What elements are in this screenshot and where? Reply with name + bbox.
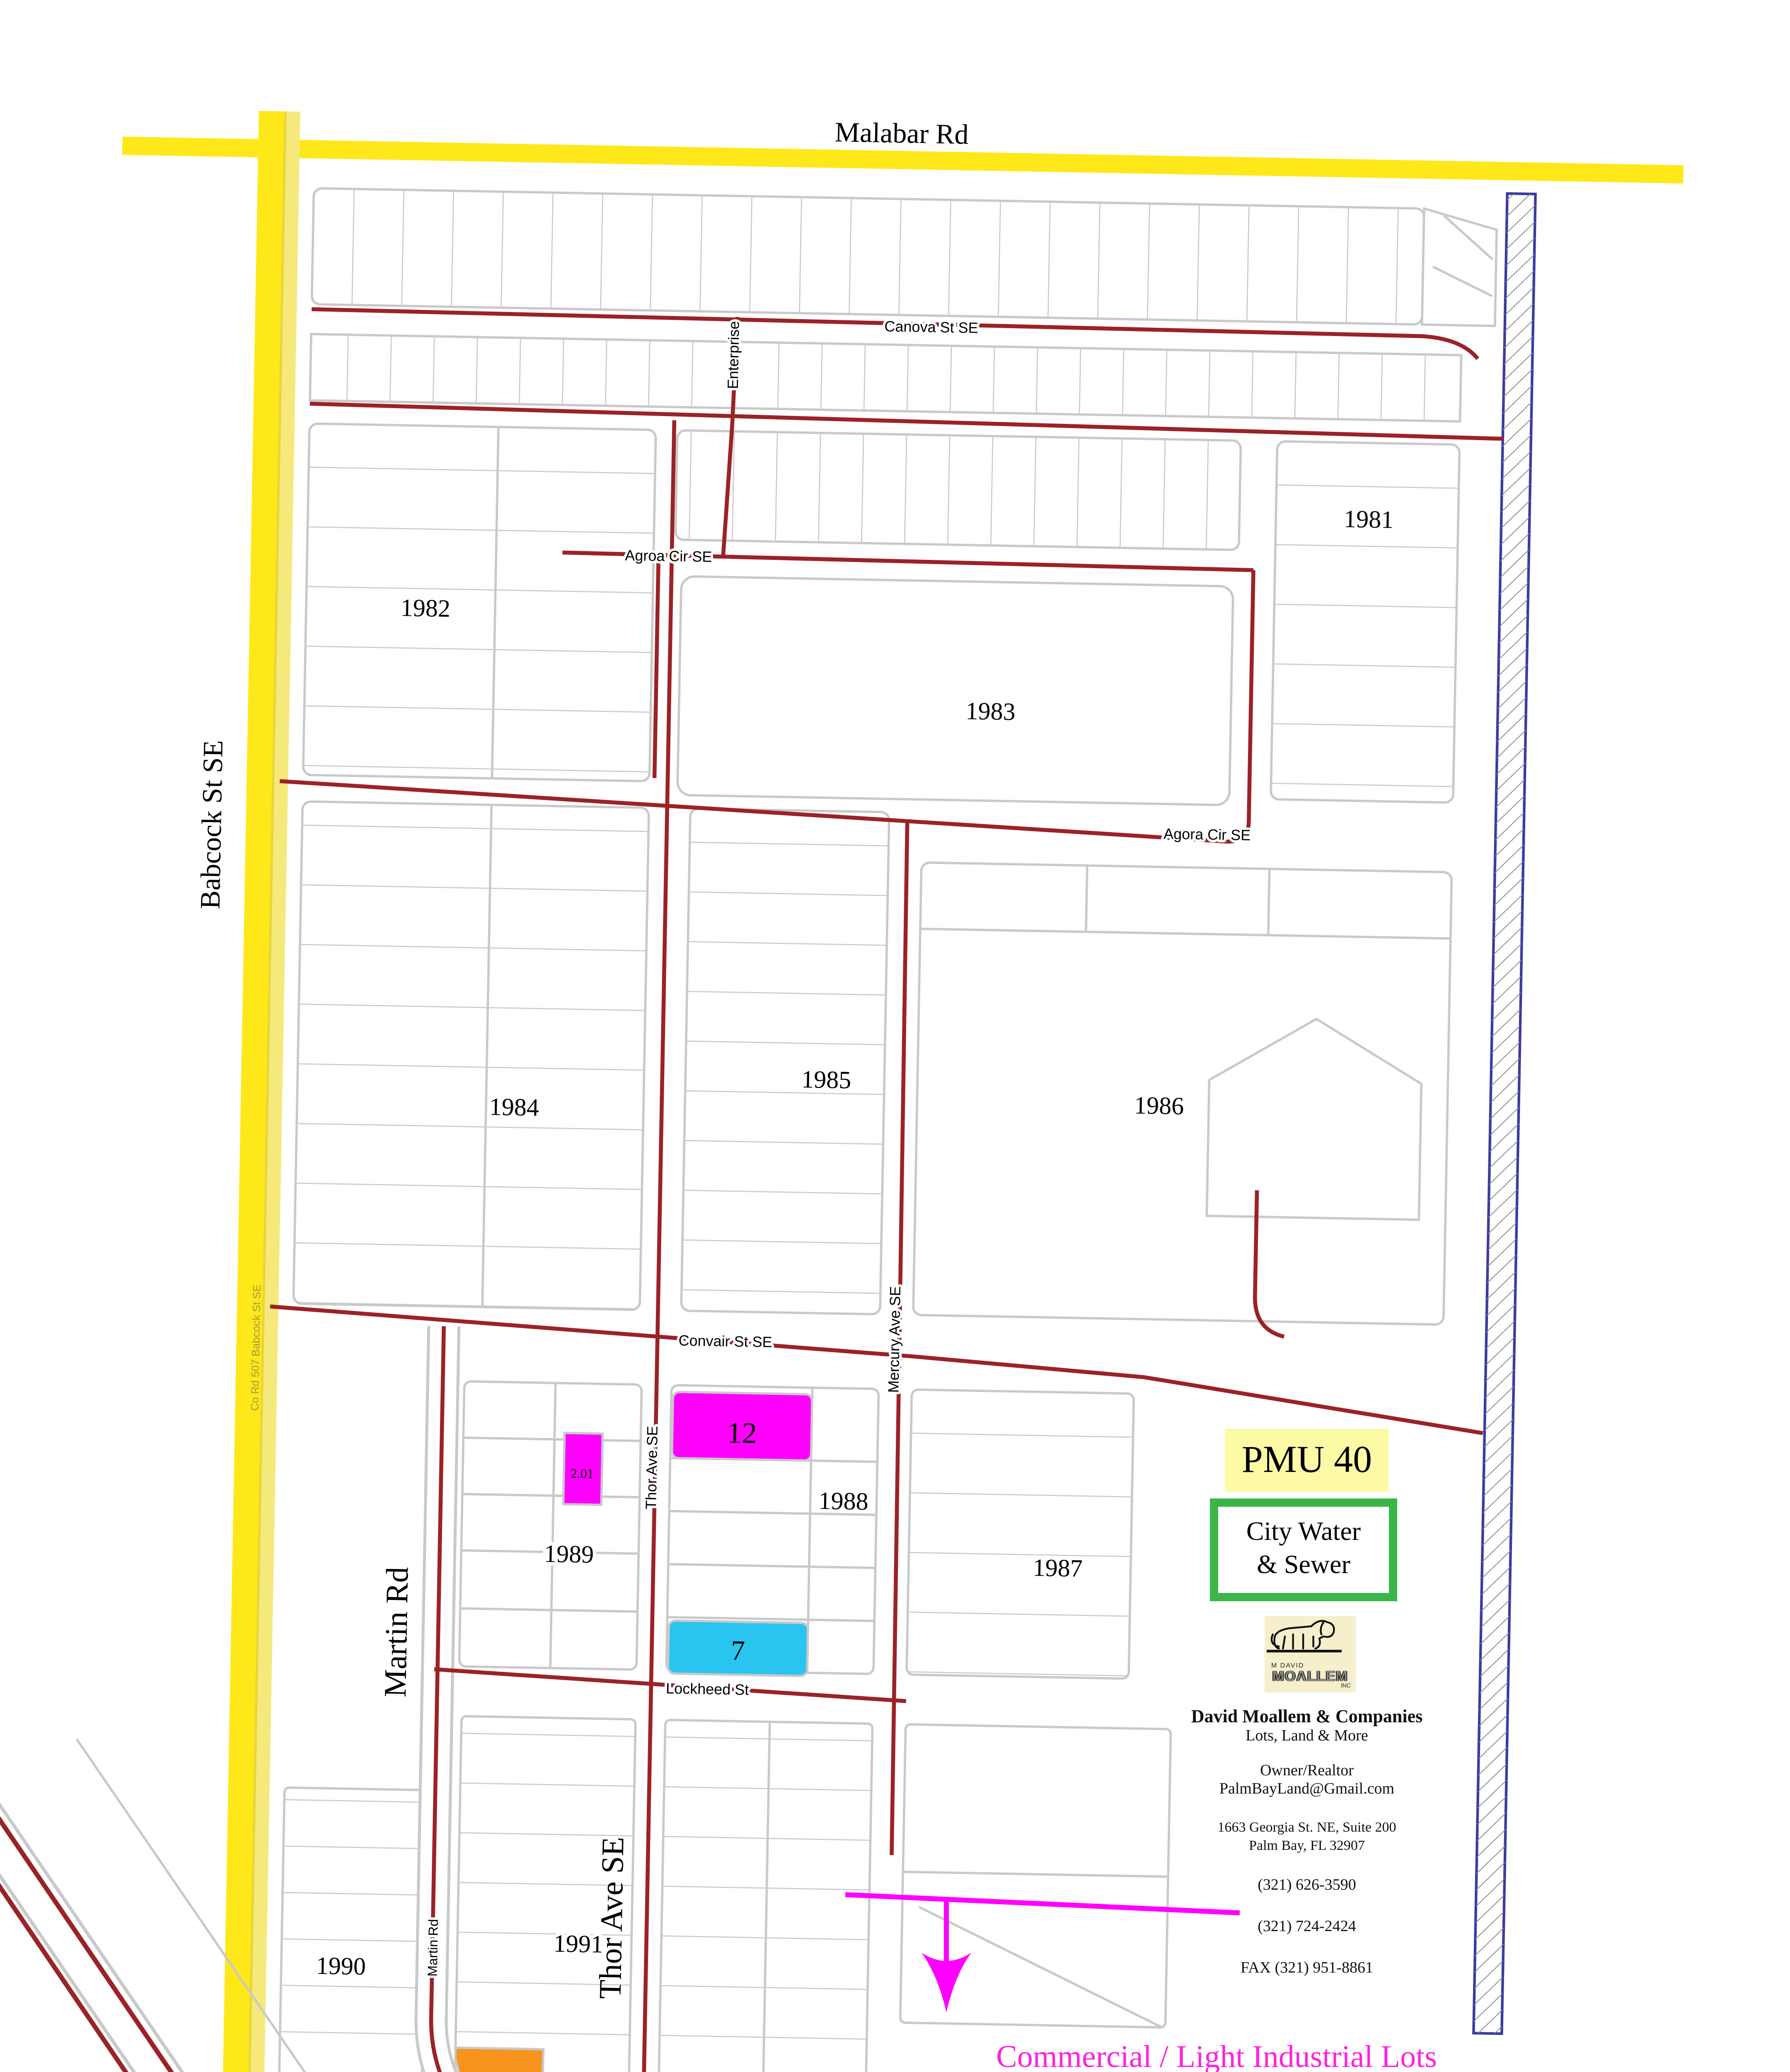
block-1988-label: 1988 (818, 1487, 868, 1515)
convair-label: Convair St SE (678, 1332, 772, 1351)
agroa-label: Agroa Cir SE (625, 547, 712, 565)
block-1991-label: 1991 (553, 1929, 603, 1958)
agora-label: Agora Cir SE (1163, 825, 1251, 844)
owner-role: Owner/Realtor (1157, 1764, 1457, 1780)
martin-big-label: Martin Rd (378, 1566, 415, 1697)
parcel-strip-north (312, 188, 1424, 324)
block-1981-label: 1981 (1344, 505, 1394, 533)
company-tagline: Lots, Land & More (1157, 1729, 1457, 1745)
martin-small-label: Martin Rd (425, 1919, 441, 1976)
moallem-logo: M DAVID MOALLEM INC (1265, 1616, 1356, 1692)
block-1985-label: 1985 (801, 1065, 851, 1094)
agroa-cir-west-leg (654, 559, 658, 778)
block-1987-label: 1987 (1033, 1554, 1083, 1582)
lot-12-label: 12 (727, 1416, 757, 1450)
block-1984-outline (293, 801, 649, 1310)
utility-badge: City Water & Sewer (1210, 1498, 1397, 1601)
babcock-label: Babcock St SE (194, 740, 229, 909)
logo-inc: INC (1341, 1682, 1351, 1689)
lot-201-label: 2.01 (570, 1466, 594, 1481)
block-1984-label: 1984 (489, 1093, 539, 1121)
address-line2: Palm Bay, FL 32907 (1157, 1837, 1457, 1853)
lot-11-shape (452, 2048, 543, 2072)
pmu-text: PMU 40 (1242, 1439, 1372, 1482)
map-canvas: Malabar Rd Babcock St SE Co Rd 507 Babco… (0, 0, 1790, 2072)
cr507-label: Co Rd 507 Babcock St SE (248, 1284, 263, 1411)
block-1986-label: 1986 (1134, 1092, 1184, 1120)
lion-icon (1265, 1616, 1346, 1653)
block-1987-outline (907, 1389, 1134, 1679)
logo-moallem: MOALLEM (1270, 1668, 1351, 1684)
block-1983-label: 1983 (965, 697, 1016, 725)
block-1985-outline (681, 808, 889, 1314)
block-1982-outline (303, 424, 656, 781)
malabar-label: Malabar Rd (835, 116, 969, 150)
block-1981-outline (1271, 441, 1460, 803)
canova-label: Canova St SE (884, 317, 978, 336)
block-1990-outline (278, 1788, 427, 2072)
address-line1: 1663 Georgia St. NE, Suite 200 (1157, 1818, 1457, 1835)
block-1982-label: 1982 (400, 594, 450, 622)
phone-2: (321) 724-2424 (1157, 1920, 1457, 1936)
company-name: David Moallem & Companies (1157, 1707, 1457, 1727)
phone-1: (321) 626-3590 (1157, 1878, 1457, 1895)
fax: FAX (321) 951-8861 (1157, 1961, 1457, 1978)
contact-block: David Moallem & Companies Lots, Land & M… (1157, 1707, 1457, 1978)
parcel-strip-agroa (675, 430, 1241, 550)
block-1989-label: 1989 (544, 1540, 594, 1568)
railroad-corridor (1473, 194, 1535, 2034)
email: PalmBayLand@Gmail.com (1157, 1782, 1457, 1798)
block-1983-outline (677, 576, 1233, 805)
utility-line2: & Sewer (1257, 1550, 1350, 1583)
lot-7-label: 7 (731, 1634, 745, 1666)
block-1990-label: 1990 (316, 1952, 366, 1980)
utility-line1: City Water (1246, 1517, 1361, 1550)
pmu-badge: PMU 40 (1225, 1429, 1389, 1492)
plat-map-page: Malabar Rd Babcock St SE Co Rd 507 Babco… (0, 0, 1790, 2072)
thor-small-label: Thor Ave SE (642, 1426, 661, 1510)
lots-heading: Commercial / Light Industrial Lots (908, 2041, 1525, 2072)
enterprise-label: Enterprise (724, 321, 743, 389)
lot-11-street: 539 (490, 2070, 522, 2072)
thor-big-label: Thor Ave SE (593, 1837, 630, 1999)
lockheed-label: Lockheed St (666, 1680, 749, 1698)
mercury-label: Mercury Ave SE (885, 1286, 904, 1393)
